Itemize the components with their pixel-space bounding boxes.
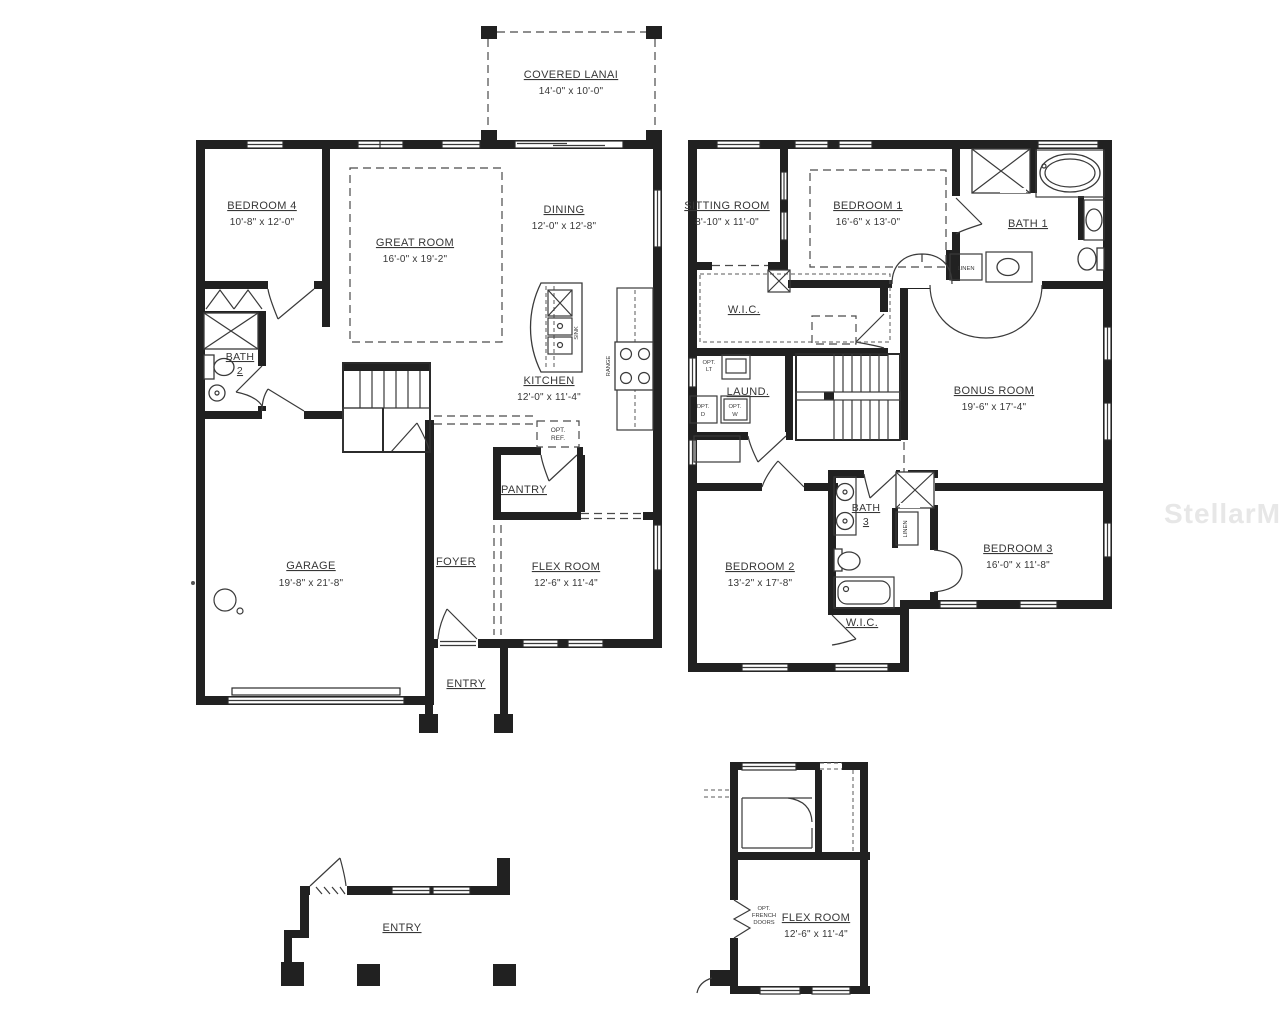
foyer-flex-divider bbox=[494, 525, 501, 635]
bedroom1-double-door-swing bbox=[892, 254, 952, 284]
storage-door-swing bbox=[788, 798, 812, 822]
linen2-label: LINEN bbox=[903, 520, 909, 537]
wic1-label: W.I.C. bbox=[728, 304, 760, 316]
opt-ref-label-2: REF. bbox=[551, 435, 565, 442]
bath2-label: BATH bbox=[226, 351, 254, 363]
stair-walls bbox=[343, 408, 391, 452]
kitchen-label: KITCHEN bbox=[523, 375, 574, 387]
closet-bifold-doors bbox=[206, 290, 262, 309]
stray-mark bbox=[191, 581, 195, 585]
bath2-number: 2 bbox=[237, 365, 243, 377]
foyer-label: FOYER bbox=[436, 556, 476, 568]
understair-door-swing bbox=[391, 423, 430, 452]
understair-closet bbox=[343, 408, 383, 452]
bonus-room-label: BONUS ROOM bbox=[954, 385, 1034, 397]
sitting-shelf-x bbox=[768, 270, 790, 292]
bedroom3-dims: 16'-0" x 11'-8" bbox=[986, 560, 1050, 571]
range-label: RANGE bbox=[606, 356, 612, 377]
flex-room-dims: 12'-6" x 11'-4" bbox=[534, 578, 598, 589]
flex-detail-walls bbox=[710, 762, 870, 994]
opt-d-label-1: OPT. bbox=[697, 404, 710, 410]
sliding-glass-door bbox=[515, 141, 623, 148]
opt-laundry-tub-basin bbox=[726, 359, 746, 373]
sink bbox=[837, 513, 854, 530]
bedroom4-door-swing bbox=[268, 289, 314, 319]
bedroom4-dims: 10'-8" x 12'-0" bbox=[230, 217, 295, 228]
sink bbox=[209, 385, 225, 401]
opt-french-doors-label-2: FRENCH bbox=[752, 913, 776, 919]
bedroom3-label: BEDROOM 3 bbox=[983, 543, 1053, 555]
stair-treads bbox=[343, 371, 430, 408]
water-heater bbox=[214, 589, 236, 611]
bath3-fixtures bbox=[834, 472, 934, 608]
bedroom2-label: BEDROOM 2 bbox=[725, 561, 795, 573]
laundry-label: LAUND. bbox=[727, 386, 770, 398]
kitchen-fixtures bbox=[531, 283, 654, 447]
cased-opening bbox=[434, 416, 537, 424]
entry-label: ENTRY bbox=[446, 678, 485, 690]
bathtub bbox=[1040, 154, 1100, 192]
floor2-stairs bbox=[796, 354, 900, 440]
sink bbox=[997, 259, 1019, 276]
connection-stub bbox=[704, 790, 730, 797]
bedroom3-double-door-swing bbox=[934, 550, 962, 592]
toilet-tank bbox=[204, 355, 214, 379]
bedroom1-dims: 16'-6" x 13'-0" bbox=[836, 217, 901, 228]
opt-lt-label-2: LT bbox=[706, 367, 713, 373]
opt-french-doors-label-1: OPT. bbox=[758, 906, 771, 912]
garage-label: GARAGE bbox=[286, 560, 335, 572]
flex-room-detail-plan: OPT. FRENCH DOORS FLEX ROOM 12'-6" x 11'… bbox=[697, 762, 870, 994]
stair-enclosure bbox=[796, 354, 900, 440]
pantry-door-swing bbox=[541, 455, 577, 481]
opt-refrigerator-box bbox=[537, 421, 579, 447]
kitchen-dims: 12'-0" x 11'-4" bbox=[517, 392, 581, 403]
floor-plan-drawing: COVERED LANAI 14'-0" x 10'-0" BEDROOM 4 … bbox=[0, 0, 1280, 1024]
stair-rail bbox=[796, 392, 900, 400]
floor1-stairs bbox=[343, 363, 430, 452]
bonus-double-door-swing bbox=[930, 285, 1042, 338]
flex-room-label: FLEX ROOM bbox=[532, 561, 600, 573]
garage-dims: 19'-8" x 21'-8" bbox=[279, 578, 344, 589]
wic1-optional-box bbox=[812, 316, 856, 344]
bedroom2-dims: 13'-2" x 17'-8" bbox=[728, 578, 793, 589]
great-room-label: GREAT ROOM bbox=[376, 237, 454, 249]
sitting-room-dims: 8'-10" x 11'-0" bbox=[695, 217, 759, 228]
sitting-room-label: SITTING ROOM bbox=[684, 200, 769, 212]
floor-drain bbox=[237, 608, 243, 614]
bathtub-inner bbox=[838, 581, 890, 604]
floor-plan-page: COVERED LANAI 14'-0" x 10'-0" BEDROOM 4 … bbox=[0, 0, 1280, 1024]
shower-entry bbox=[900, 503, 920, 508]
tub-drain bbox=[844, 587, 849, 592]
bonus-room-dims: 19'-6" x 17'-4" bbox=[962, 402, 1027, 413]
second-floor-plan: SITTING ROOM 8'-10" x 11'-0" BEDROOM 1 1… bbox=[684, 140, 1112, 672]
pantry-label: PANTRY bbox=[501, 484, 547, 496]
dining-label: DINING bbox=[544, 204, 585, 216]
stair-treads bbox=[834, 354, 888, 440]
bath3-number: 3 bbox=[863, 516, 869, 528]
garage-door-panel bbox=[232, 688, 400, 695]
lanai-screen-walls bbox=[488, 32, 655, 130]
opt-w-label-2: W bbox=[732, 412, 738, 418]
sink bbox=[1086, 209, 1102, 231]
flex-detail-dims: 12'-6" x 11'-4" bbox=[784, 929, 848, 940]
wic2-label: W.I.C. bbox=[846, 617, 878, 629]
wic1-door-swing bbox=[856, 314, 884, 348]
covered-lanai-label: COVERED LANAI bbox=[524, 69, 618, 81]
lanai-posts bbox=[481, 26, 662, 142]
toilet-bowl bbox=[1078, 248, 1096, 270]
grade-squiggle bbox=[697, 978, 712, 993]
great-room-dims: 16'-0" x 19'-2" bbox=[383, 254, 448, 265]
covered-lanai bbox=[481, 26, 662, 142]
toilet-tank bbox=[1097, 248, 1104, 270]
sink bbox=[837, 484, 854, 501]
entry-detail-plan: ENTRY bbox=[281, 858, 516, 986]
front-door-swing bbox=[438, 609, 477, 639]
opt-w-label-1: OPT. bbox=[729, 404, 742, 410]
shower-entry bbox=[1000, 188, 1026, 193]
bedroom4-label: BEDROOM 4 bbox=[227, 200, 297, 212]
entry-door-swing bbox=[310, 858, 346, 886]
garage-entry-door-swing bbox=[262, 389, 304, 411]
bedroom1-label: BEDROOM 1 bbox=[833, 200, 903, 212]
stellar-mls-watermark: StellarMLS bbox=[1164, 498, 1280, 529]
flex-detail-label: FLEX ROOM bbox=[782, 912, 850, 924]
bath3-label: BATH bbox=[852, 502, 880, 514]
entry-door-opening bbox=[310, 886, 347, 895]
opt-d-label-2: D bbox=[701, 412, 705, 418]
sink-label: SINK bbox=[574, 326, 580, 340]
opt-french-doors-label-3: DOORS bbox=[753, 920, 774, 926]
opt-ref-label-1: OPT. bbox=[551, 427, 566, 434]
storage-partitions bbox=[742, 798, 812, 848]
toilet-bowl bbox=[838, 552, 860, 570]
linen1-label: LINEN bbox=[957, 266, 974, 272]
entry-detail-label: ENTRY bbox=[382, 922, 421, 934]
opt-lt-label-1: OPT. bbox=[703, 360, 716, 366]
dining-dims: 12'-0" x 12'-8" bbox=[532, 221, 597, 232]
bath1-label: BATH 1 bbox=[1008, 218, 1048, 230]
covered-lanai-dims: 14'-0" x 10'-0" bbox=[539, 86, 604, 97]
floor1-door-openings bbox=[258, 281, 643, 648]
first-floor-plan: COVERED LANAI 14'-0" x 10'-0" BEDROOM 4 … bbox=[191, 26, 662, 733]
